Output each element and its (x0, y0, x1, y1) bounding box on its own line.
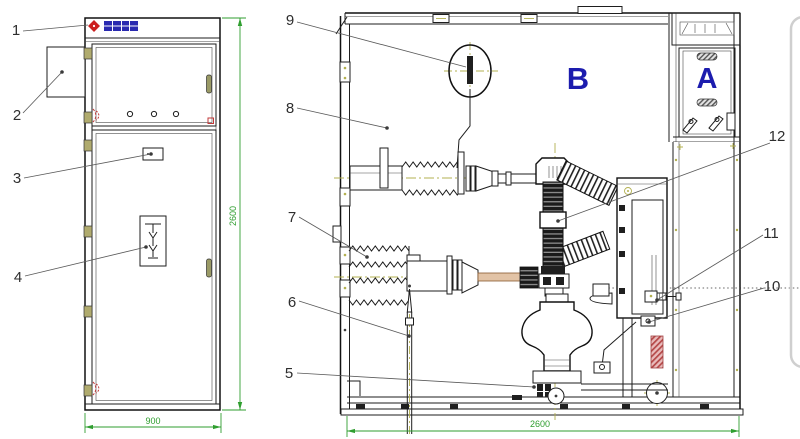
hinge (84, 140, 92, 151)
lower-bushing (349, 246, 538, 305)
floor-step (347, 381, 360, 396)
compartment-a-label: A (697, 63, 718, 95)
front-lower-door[interactable] (84, 130, 216, 404)
callout-1-label: 1 (12, 22, 20, 39)
spring (651, 336, 663, 368)
brand-logo (88, 20, 138, 32)
side-mounted-box (47, 47, 85, 97)
drawing-canvas: 2600 900 1 2 3 4 (0, 0, 800, 439)
callout-7-label: 7 (288, 209, 296, 226)
hinge (84, 226, 92, 237)
vent-slot (697, 99, 717, 106)
hinge (84, 112, 92, 123)
mimic-diagram (140, 216, 166, 266)
hinge (84, 306, 92, 317)
callout-4-label: 4 (14, 269, 22, 286)
callout-5-label: 5 (285, 365, 293, 382)
swing-arc (93, 109, 96, 122)
front-upper-door[interactable] (84, 44, 216, 126)
indicator-hole (127, 111, 132, 116)
door-handle[interactable] (207, 259, 212, 277)
side-frame (333, 7, 743, 416)
bell-insulator (522, 302, 592, 371)
vent-slot (697, 53, 717, 60)
callout-6-label: 6 (288, 294, 296, 311)
front-width-dim: 900 (145, 416, 160, 426)
breaker-pole (536, 158, 618, 296)
callout-3-label: 3 (13, 170, 21, 187)
callout-8-label: 8 (286, 100, 294, 117)
indicator-hole (151, 111, 156, 116)
callout-2-label: 2 (13, 107, 21, 124)
front-height-dim: 2600 (228, 206, 238, 226)
upper-angled-insulator (557, 161, 618, 205)
hinge (84, 385, 92, 396)
callout-11-label: 11 (763, 225, 779, 242)
compartment-b-label: B (567, 61, 589, 96)
side-dimension: 2600 (347, 416, 739, 437)
pole-mid-box (540, 212, 566, 228)
front-view: 2600 900 1 2 3 4 (12, 18, 246, 433)
nameplate (143, 148, 163, 160)
front-cabinet-outline (85, 18, 220, 410)
upper-bushing (350, 148, 538, 195)
sheet-corner-border (791, 17, 800, 367)
hinge (84, 48, 92, 59)
swing-arc (93, 382, 96, 395)
indicator-hole (173, 111, 178, 116)
door-handle[interactable] (207, 75, 212, 93)
callout-12-label: 12 (769, 128, 786, 145)
callout-10-label: 10 (764, 278, 781, 295)
callout-9-label: 9 (286, 12, 294, 29)
sensor-assembly (449, 45, 491, 168)
switchgear-engineering-drawing: 2600 900 1 2 3 4 (0, 0, 800, 439)
side-view: B A (285, 7, 800, 438)
side-width-dim: 2600 (530, 419, 550, 429)
top-cover-bump (578, 7, 622, 14)
compartment-a-panel: A (669, 13, 740, 409)
